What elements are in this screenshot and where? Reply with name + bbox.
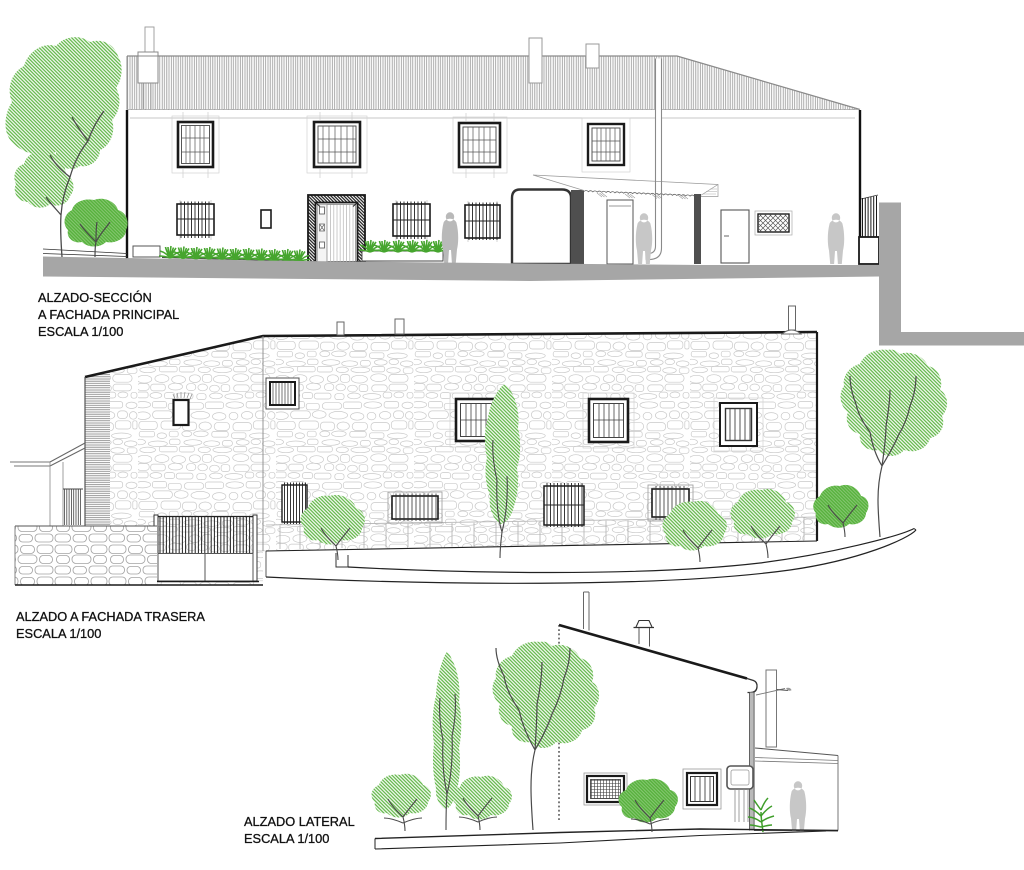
svg-text:ESCALA 1/100: ESCALA 1/100 — [16, 626, 101, 641]
svg-text:ALZADO A FACHADA TRASERA: ALZADO A FACHADA TRASERA — [16, 609, 205, 624]
svg-text:ALZADO LATERAL: ALZADO LATERAL — [244, 814, 355, 829]
svg-text:ESCALA 1/100: ESCALA 1/100 — [244, 831, 329, 846]
svg-text:ESCALA 1/100: ESCALA 1/100 — [38, 324, 123, 339]
svg-text:ALZADO-SECCIÓN: ALZADO-SECCIÓN — [38, 290, 152, 305]
svg-text:A FACHADA PRINCIPAL: A FACHADA PRINCIPAL — [38, 307, 179, 322]
